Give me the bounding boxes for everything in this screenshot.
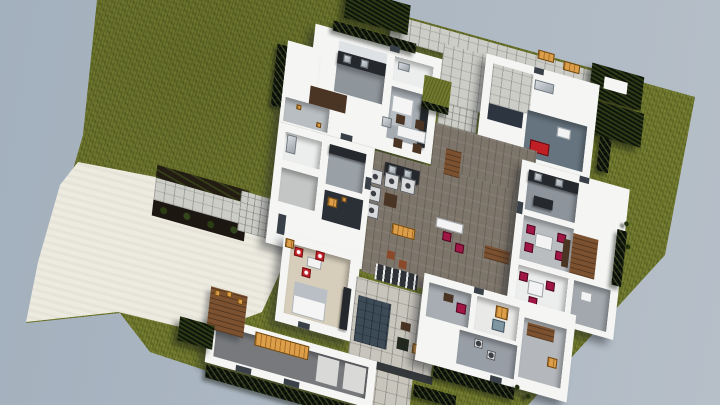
lamp-orange-2 [316,122,321,128]
slate-terrace [354,295,392,350]
3d-viewport[interactable] [0,0,720,405]
deck-flower [214,289,220,297]
lamp-orange-1 [296,104,301,110]
deck-flower [226,291,232,299]
rust-chair [398,260,407,270]
cooktop [343,54,352,64]
garage-cell-2 [342,363,366,395]
deck-flower [237,298,243,306]
sink [360,59,369,69]
wood-slat-table [569,233,598,280]
gold-stool [341,196,346,202]
garage-cell-1 [316,355,340,387]
wood-console [443,148,461,178]
bath-w-fixture [286,134,298,155]
